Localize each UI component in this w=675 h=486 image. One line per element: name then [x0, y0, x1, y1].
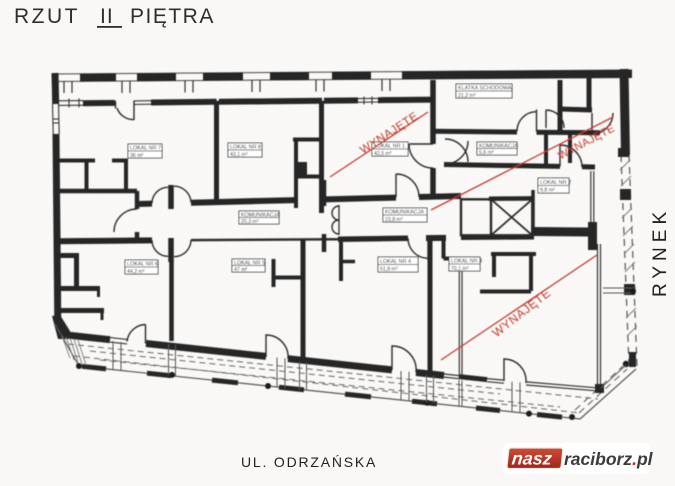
svg-text:LOKAL NR 6: LOKAL NR 6 [127, 262, 158, 268]
svg-text:raciborz.pl: raciborz.pl [564, 449, 654, 469]
svg-text:LOKAL NR 3: LOKAL NR 3 [451, 259, 482, 265]
svg-text:51,8 m²: 51,8 m² [380, 267, 398, 273]
svg-text:LOKAL NR 2: LOKAL NR 2 [540, 180, 571, 186]
svg-text:44,2 m²: 44,2 m² [127, 269, 145, 275]
svg-text:9,8 m²: 9,8 m² [540, 188, 555, 194]
svg-text:RYNEK: RYNEK [650, 207, 671, 297]
svg-text:LOKAL NR 7: LOKAL NR 7 [130, 146, 161, 152]
svg-text:LOKAL NR 8: LOKAL NR 8 [230, 145, 261, 151]
svg-text:47 m²: 47 m² [234, 267, 248, 273]
svg-text:21,2 m²: 21,2 m² [458, 93, 476, 99]
svg-text:LOKAL NR 4: LOKAL NR 4 [380, 259, 411, 265]
svg-text:23,8 m²: 23,8 m² [385, 217, 403, 223]
svg-text:36 m²: 36 m² [130, 153, 144, 159]
svg-text:43,1 m²: 43,1 m² [230, 152, 248, 158]
svg-text:KOMUNIKACJA: KOMUNIKACJA [479, 143, 518, 149]
svg-text:20,3 m²: 20,3 m² [241, 219, 259, 225]
svg-text:RZUT: RZUT [14, 5, 80, 28]
svg-text:UL. ODRZAŃSKA: UL. ODRZAŃSKA [241, 454, 377, 470]
svg-text:42,5 m²: 42,5 m² [374, 151, 392, 157]
svg-text:KOMUNIKACJA: KOMUNIKACJA [241, 212, 280, 218]
svg-text:KOMUNIKACJA: KOMUNIKACJA [385, 210, 424, 216]
svg-text:5,6 m²: 5,6 m² [479, 150, 494, 156]
svg-text:KLATKA SCHODOWA: KLATKA SCHODOWA [458, 86, 512, 92]
svg-text:LOKAL NR 5: LOKAL NR 5 [234, 260, 265, 266]
svg-text:nasz: nasz [511, 449, 553, 469]
svg-text:PIĘTRA: PIĘTRA [130, 5, 215, 28]
svg-text:II: II [100, 5, 114, 28]
svg-text:70,1 m²: 70,1 m² [451, 266, 469, 272]
